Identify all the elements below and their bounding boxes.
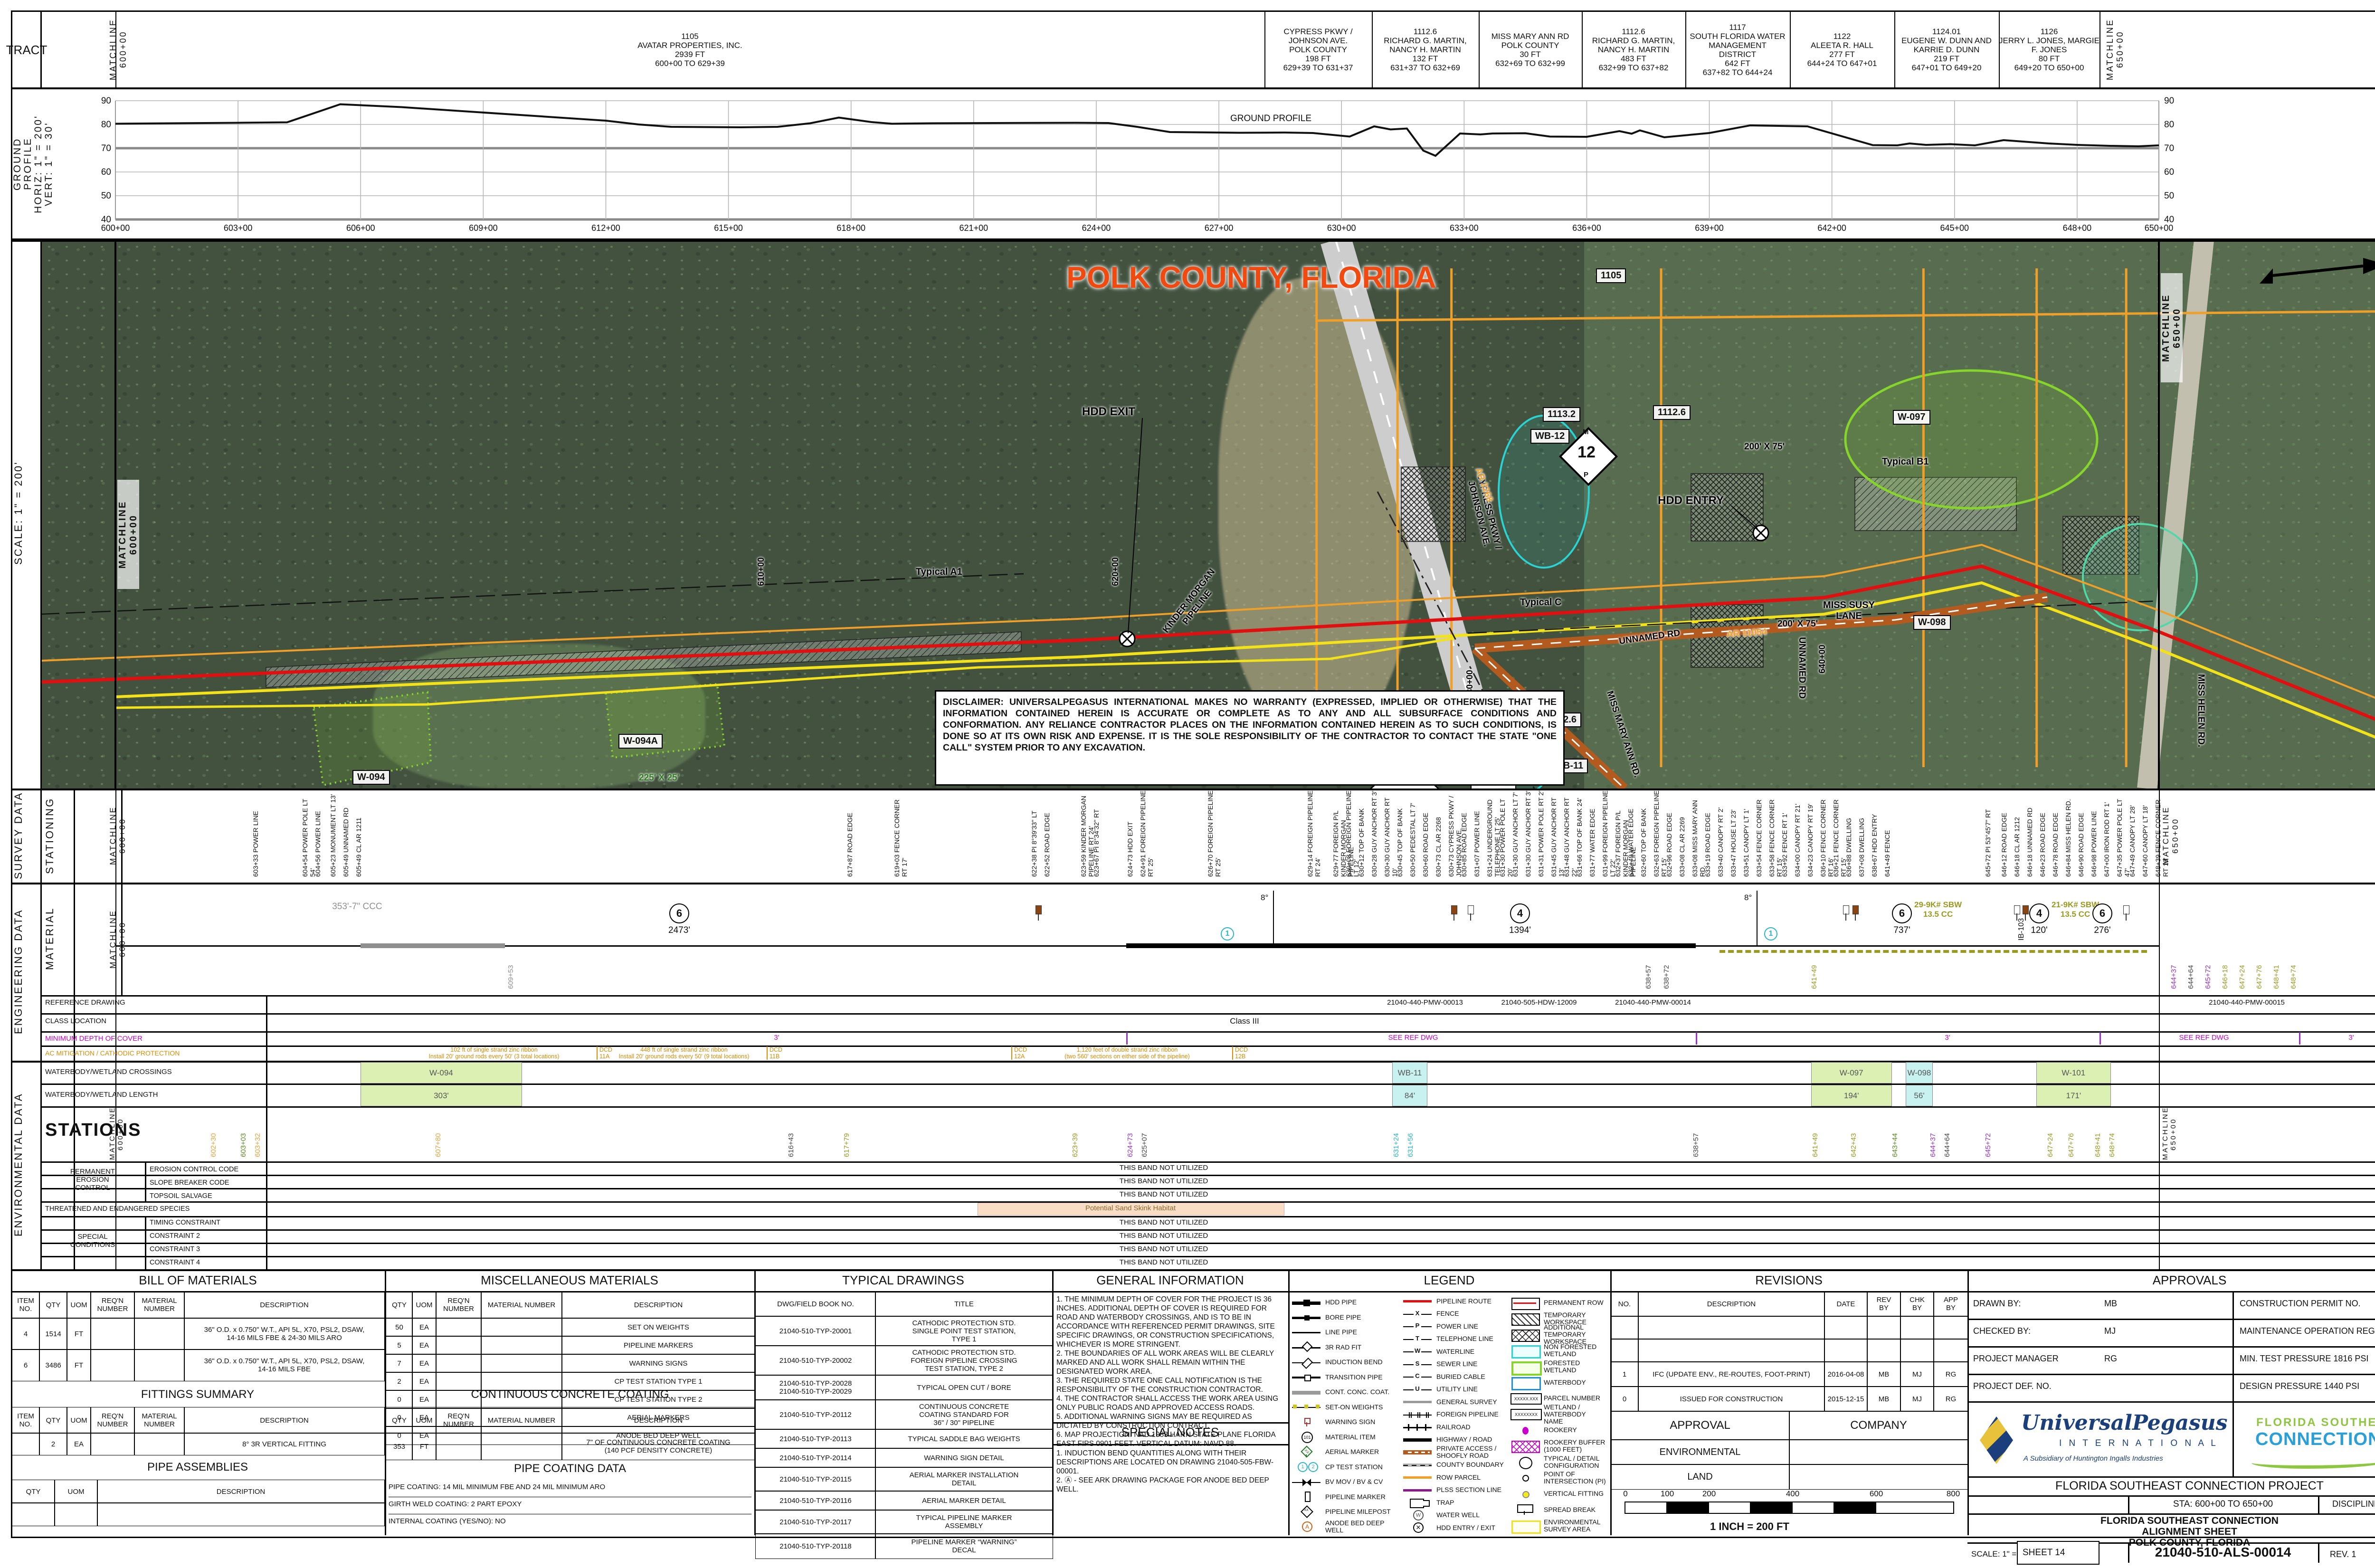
legend-item: ADDITIONAL TEMPORARY WORKSPACE <box>1510 1327 1608 1343</box>
transition-pipe-icon <box>1292 1372 1322 1382</box>
up-logo-sub: I N T E R N A T I O N A L <box>2059 1438 2218 1449</box>
discipline: DISCIPLINE#: 03 <box>2320 1499 2375 1509</box>
bv-mov-icon <box>1292 1477 1322 1487</box>
rule-line <box>1967 1495 2375 1497</box>
revisions-table-cell <box>1867 1316 1901 1340</box>
typicals-table-cell: TITLE <box>875 1291 1053 1317</box>
legend-item-label: ROOKERY BUFFER (1000 FEET) <box>1541 1439 1605 1453</box>
fsc-logo-line1: FLORIDA SOUTHEAST <box>2256 1416 2375 1429</box>
legend-item-label: WATERLINE <box>1434 1348 1474 1355</box>
fittings-table-cell: QTY <box>39 1407 67 1434</box>
set-on-weights-icon-part <box>1316 1405 1320 1408</box>
legend-item: TYPICAL / DETAIL CONFIGURATION <box>1510 1454 1608 1470</box>
foreign-pipeline-icon <box>1403 1409 1434 1420</box>
legend-item: PPOWER LINE <box>1403 1320 1510 1333</box>
legend-item-label: WATERBODY <box>1541 1379 1586 1386</box>
sta-range: STA: 600+00 TO 650+00 <box>2128 1499 2318 1510</box>
legend-item: WATERBODY <box>1510 1375 1608 1391</box>
foreign-pipeline-icon-part <box>1417 1412 1418 1418</box>
revisions-table-cell: DESCRIPTION <box>1638 1291 1825 1317</box>
fittings-table-cell: REQ'N NUMBER <box>90 1407 135 1434</box>
bv-mov-icon-part <box>1307 1479 1311 1486</box>
telephone-line-icon: T <box>1403 1334 1434 1344</box>
bom-table-cell <box>134 1349 185 1381</box>
legend-item-label: VERTICAL FITTING <box>1541 1490 1604 1497</box>
warning-sign-icon-part <box>1304 1418 1311 1424</box>
temp-ws-icon-part <box>1511 1313 1540 1326</box>
env-survey-area-icon <box>1510 1520 1541 1531</box>
rookery-buffer-icon-part <box>1511 1441 1540 1453</box>
waterline-icon-part: W <box>1415 1347 1420 1354</box>
foreign-pipeline-icon-part <box>1426 1412 1427 1418</box>
legend-item-label: BV MOV / BV & CV <box>1322 1478 1383 1485</box>
coating-line: INTERNAL COATING (YES/NO): NO <box>389 1517 751 1531</box>
legend-item: HDD PIPE <box>1292 1295 1402 1310</box>
vertical-fitting-icon <box>1510 1489 1541 1499</box>
legend-item-label: PARCEL NUMBER <box>1541 1395 1600 1402</box>
legend-item-label: ENVIRONMENTAL SURVEY AREA <box>1541 1519 1601 1533</box>
legend-item-label: 3R RAD FIT <box>1322 1344 1361 1351</box>
bom-table-cell: 1514 <box>39 1318 67 1350</box>
hdd-entry-exit-icon-part: ✕ <box>1413 1522 1424 1533</box>
legend-item-label: ROOKERY <box>1541 1426 1577 1434</box>
misc-table-cell: MATERIAL NUMBER <box>481 1291 562 1319</box>
approvals-title: APPROVALS <box>1967 1269 2375 1291</box>
assemblies-title: PIPE ASSEMBLIES <box>11 1461 384 1474</box>
waterbody-icon <box>1510 1377 1541 1387</box>
legend-item-label: COUNTY BOUNDARY <box>1434 1461 1504 1468</box>
waterline-icon-part <box>1421 1351 1432 1352</box>
scale-bar-segment <box>1666 1501 1710 1514</box>
revisions-table-cell <box>1638 1316 1825 1340</box>
misc-table-cell: REQ'N NUMBER <box>436 1291 482 1319</box>
highway-icon-part <box>1403 1438 1432 1442</box>
bom-title: BILL OF MATERIALS <box>11 1269 385 1291</box>
revisions-table-cell <box>1867 1339 1901 1362</box>
revisions-table-cell: CHK BY <box>1900 1291 1934 1317</box>
misc-table-cell <box>436 1354 482 1373</box>
nf-wetland-icon <box>1510 1345 1541 1356</box>
special-notes-title: SPECIAL NOTES <box>1052 1425 1288 1440</box>
typicals-table-cell: 21040-510-TYP-20113 <box>755 1429 876 1449</box>
railroad-icon-part <box>1408 1424 1409 1431</box>
revisions-title: REVISIONS <box>1610 1269 1967 1291</box>
special-notes-text: 1. INDUCTION BEND QUANTITIES ALONG WITH … <box>1056 1449 1283 1494</box>
drawing-number: 21040-510-ALS-00014 <box>2128 1545 2318 1560</box>
legend-item-label: PIPELINE ROUTE <box>1434 1298 1491 1305</box>
buried-cable-icon-part: C <box>1415 1372 1420 1379</box>
legend-item-label: UTILITY LINE <box>1434 1386 1478 1393</box>
revisions-table-cell: MJ <box>1900 1386 1934 1412</box>
legend-item: WWATER WELL <box>1403 1509 1510 1522</box>
approval-cell <box>1789 1464 1968 1490</box>
revisions-table-cell <box>1900 1316 1934 1340</box>
scale-number: 800 <box>1944 1489 1963 1499</box>
legend-item: ✕HDD ENTRY / EXIT <box>1403 1521 1510 1534</box>
rule-line <box>2128 1542 2129 1563</box>
revisions-table-cell: RG <box>1933 1386 1968 1412</box>
titleblock-field-label: PROJECT DEF. NO. <box>1973 1381 2052 1391</box>
misc-table-cell: 50 <box>386 1318 413 1337</box>
revisions-table-cell <box>1933 1339 1968 1362</box>
typicals-table-cell: PIPELINE MARKER “WARNING” DECAL <box>875 1533 1053 1559</box>
legend-item-label: TRANSITION PIPE <box>1322 1374 1383 1381</box>
legend-item: COUNTY BOUNDARY <box>1403 1459 1510 1472</box>
legend-item: XXXXXXXXWETLAND / WATERBODY NAME <box>1510 1406 1608 1423</box>
revisions-table-cell: MJ <box>1900 1361 1934 1387</box>
bottom-tables: BILL OF MATERIALSMISCELLANEOUS MATERIALS… <box>0 0 2375 1568</box>
legend-item-label: WARNING SIGN <box>1322 1418 1375 1425</box>
legend-item-label: BORE PIPE <box>1322 1314 1361 1321</box>
bom-table-cell: 3486 <box>39 1349 67 1381</box>
fsc-logo: FLORIDA SOUTHEASTCONNECTION <box>2242 1413 2375 1470</box>
assemblies-table-cell <box>11 1502 55 1526</box>
titleblock-field-label: PROJECT MANAGER <box>1973 1354 2059 1364</box>
approval-cell: COMPANY <box>1789 1411 1968 1440</box>
revisions-table-cell <box>1824 1339 1868 1362</box>
revisions-table-cell: NO. <box>1610 1291 1639 1317</box>
bom-table-cell: 4 <box>11 1318 40 1350</box>
perm-row-icon-part <box>1511 1298 1540 1310</box>
legend-item-label: PIPELINE MILEPOST <box>1322 1508 1391 1515</box>
line-pipe-icon-part <box>1292 1332 1320 1334</box>
waterline-icon-part <box>1403 1351 1414 1352</box>
approval-cell: ENVIRONMENTAL <box>1610 1439 1790 1465</box>
rule-line <box>1967 1401 2375 1403</box>
legend-item: WARNING SIGN <box>1292 1415 1402 1430</box>
revisions-table-cell <box>1900 1339 1934 1362</box>
pi-icon <box>1510 1473 1541 1483</box>
scale-bar-segment <box>1750 1501 1794 1514</box>
legend-item-label: MATERIAL ITEM <box>1322 1434 1376 1441</box>
aerial-marker-icon: XX <box>1292 1447 1322 1457</box>
titleblock-field-right: CONSTRUCTION PERMIT NO. <box>2240 1299 2361 1309</box>
legend-item-label: TYPICAL / DETAIL CONFIGURATION <box>1541 1455 1599 1469</box>
legend-item-label: HDD ENTRY / EXIT <box>1434 1524 1495 1531</box>
legend-item-label: GENERAL SURVEY <box>1434 1398 1497 1406</box>
titleblock-field-label: CHECKED BY: <box>1973 1326 2031 1336</box>
cont-conc-icon-part <box>1292 1391 1320 1395</box>
row-parcel-icon <box>1403 1472 1434 1482</box>
general-survey-icon <box>1403 1397 1434 1407</box>
cp-test-icon: 12 <box>1292 1462 1322 1472</box>
revisions-table-cell: APP BY <box>1933 1291 1968 1317</box>
titleblock-field-right: MAINTENANCE OPERATION REGION <box>2240 1326 2375 1336</box>
legend-col-1: HDD PIPEBORE PIPELINE PIPE3R RAD FITINDU… <box>1292 1295 1402 1534</box>
misc-table-cell: QTY <box>386 1291 413 1319</box>
revisions-table-cell: RG <box>1933 1361 1968 1387</box>
fence-icon-part: X <box>1415 1310 1420 1317</box>
legend-item: UUTILITY LINE <box>1403 1383 1510 1396</box>
typicals-table-cell: AERIAL MARKER INSTALLATION DETAIL <box>875 1467 1053 1492</box>
legend-item: SET-ON WEIGHTS <box>1292 1400 1402 1415</box>
cont-conc-icon <box>1292 1387 1322 1397</box>
misc-table-cell: 5 <box>386 1336 413 1355</box>
typicals-table-cell: 21040-510-TYP-20112 <box>755 1399 876 1430</box>
scale-number: 0 <box>1616 1489 1635 1499</box>
spread-break-icon-part <box>1524 1511 1525 1515</box>
scale-number: 600 <box>1867 1489 1886 1499</box>
utility-line-icon-part <box>1403 1389 1414 1390</box>
legend-item-label: PLSS SECTION LINE <box>1434 1486 1501 1493</box>
legend-item: GENERAL SURVEY <box>1403 1396 1510 1408</box>
typicals-table-cell: 21040-510-TYP-20002 <box>755 1345 876 1376</box>
add-temp-ws-icon-part <box>1511 1330 1540 1342</box>
coating-title: PIPE COATING DATA <box>386 1462 754 1475</box>
foreign-pipeline-icon-part <box>1428 1412 1429 1418</box>
typicals-table-cell: WARNING SIGN DETAIL <box>875 1448 1053 1468</box>
revisions-table-cell: 0 <box>1610 1386 1639 1412</box>
project-name: FLORIDA SOUTHEAST CONNECTION PROJECT <box>1967 1479 2375 1493</box>
scale-bar-segment <box>1875 1501 1954 1514</box>
legend-item: 3R RAD FIT <box>1292 1340 1402 1355</box>
bom-table-cell <box>90 1318 135 1350</box>
legend-item-label: BURIED CABLE <box>1434 1373 1485 1380</box>
legend-item-label: POWER LINE <box>1434 1323 1478 1330</box>
assemblies-table-cell: UOM <box>54 1480 98 1503</box>
rule-line <box>2232 1291 2234 1319</box>
bv-mov-icon-part <box>1302 1479 1307 1486</box>
bom-table-cell: UOM <box>66 1291 91 1319</box>
anode-bed-icon-part: A <box>1302 1521 1312 1532</box>
sewer-line-icon: S <box>1403 1359 1434 1369</box>
legend-item: PIPELINE ROUTE <box>1403 1295 1510 1308</box>
bom-table-cell: DESCRIPTION <box>184 1291 385 1319</box>
bom-table-cell <box>90 1349 135 1381</box>
typicals-table-cell: TYPICAL SADDLE BAG WEIGHTS <box>875 1429 1053 1449</box>
transition-pipe-icon-part <box>1304 1375 1311 1381</box>
rule-line <box>2318 1542 2319 1563</box>
legend-item: PLSS SECTION LINE <box>1403 1484 1510 1497</box>
legend-item-label: SEWER LINE <box>1434 1360 1477 1368</box>
plss-icon <box>1403 1485 1434 1495</box>
parcel-number-icon: XXXXX.XXX <box>1510 1393 1541 1404</box>
scale-bar-segment <box>1792 1501 1835 1514</box>
bom-table-cell: MATERIAL NUMBER <box>134 1291 185 1319</box>
legend-item-label: CP TEST STATION <box>1322 1463 1383 1471</box>
typicals-table-cell: TYPICAL PIPELINE MARKER ASSEMBLY <box>875 1510 1053 1534</box>
bom-table-cell: 36" O.D. x 0.750" W.T., API 5L, X70, PSL… <box>184 1349 385 1381</box>
water-well-icon-part: W <box>1413 1510 1424 1520</box>
titleblock-field-value: MJ <box>2104 1326 2116 1336</box>
set-on-weights-icon-part <box>1293 1405 1297 1408</box>
fittings-table-cell: 8° 3R VERTICAL FITTING <box>184 1433 385 1455</box>
temp-ws-icon <box>1510 1313 1541 1324</box>
telephone-line-icon-part <box>1421 1339 1432 1340</box>
legend-item-label: RAILROAD <box>1434 1424 1471 1431</box>
revisions-table-cell: ISSUED FOR CONSTRUCTION <box>1638 1386 1825 1412</box>
alignment-sheet: { "colors":{"route_red":"#e01010","row_y… <box>0 0 2375 1568</box>
pipeline-route-icon-part <box>1403 1300 1432 1302</box>
legend-item-label: AERIAL MARKER <box>1322 1448 1379 1455</box>
utility-line-icon-part <box>1421 1389 1432 1390</box>
titleblock-field-value: MB <box>2104 1299 2117 1309</box>
legend-item-label: WETLAND / WATERBODY NAME <box>1541 1404 1608 1425</box>
ccc-table-cell: UOM <box>412 1407 437 1434</box>
titleblock-field-right: MIN. TEST PRESSURE 1816 PSI <box>2240 1354 2368 1364</box>
legend-item-label: WATER WELL <box>1434 1511 1480 1519</box>
f-wetland-icon-part <box>1511 1361 1542 1376</box>
typicals-table-cell: CATHODIC PROTECTION STD. FOREIGN PIPELIN… <box>875 1345 1053 1376</box>
legend-item: CONT. CONC. COAT. <box>1292 1385 1402 1400</box>
milepost-icon-part: XX <box>1303 1509 1309 1512</box>
induction-bend-icon-part <box>1301 1358 1313 1369</box>
legend-item: TRAP <box>1403 1496 1510 1509</box>
fittings-table-cell <box>11 1433 40 1455</box>
rookery-icon <box>1510 1425 1541 1435</box>
revision-number: REV. 1 <box>2330 1549 2356 1559</box>
revisions-table-cell <box>1638 1339 1825 1362</box>
revisions-table-cell <box>1933 1316 1968 1340</box>
typicals-table-cell: 21040-510-TYP-20114 <box>755 1448 876 1468</box>
fittings-title: FITTINGS SUMMARY <box>11 1388 384 1401</box>
approval-cell: LAND <box>1610 1464 1790 1490</box>
spread-break-icon-part <box>1517 1504 1533 1513</box>
power-line-icon-part <box>1421 1326 1432 1327</box>
approval-cell: APPROVAL <box>1610 1411 1790 1440</box>
misc-table-cell: PIPELINE MARKERS <box>561 1336 755 1355</box>
sewer-line-icon-part <box>1421 1364 1432 1365</box>
pi-icon-part <box>1522 1475 1529 1482</box>
legend-item-label: FENCE <box>1434 1310 1459 1317</box>
legend-item-label: PRIVATE ACCESS / SHOOFLY ROAD <box>1434 1445 1496 1459</box>
assemblies-table-cell <box>54 1502 98 1526</box>
private-access-icon <box>1403 1447 1434 1457</box>
fittings-table-cell: DESCRIPTION <box>184 1407 385 1434</box>
perm-row-icon <box>1510 1298 1541 1308</box>
parcel-number-icon-part: XXXXX.XXX <box>1510 1393 1542 1405</box>
county-boundary-icon <box>1403 1460 1434 1470</box>
plss-icon-part <box>1403 1489 1432 1492</box>
legend-col-2: PIPELINE ROUTEXFENCEPPOWER LINETTELEPHON… <box>1403 1295 1510 1534</box>
ccc-table-cell: QTY <box>386 1407 413 1434</box>
ccc-table-cell <box>436 1433 482 1460</box>
hdd-pipe-icon <box>1292 1297 1322 1308</box>
bom-table-cell: REQ'N NUMBER <box>90 1291 135 1319</box>
county-boundary-icon-part <box>1403 1465 1432 1466</box>
legend-item-label: ADDITIONAL TEMPORARY WORKSPACE <box>1541 1324 1608 1345</box>
typical-detail-icon-part <box>1519 1457 1532 1469</box>
typicals-table-cell: CATHODIC PROTECTION STD. SINGLE POINT TE… <box>875 1316 1053 1346</box>
legend-item-label: TRAP <box>1434 1499 1454 1506</box>
rule-line <box>1967 1346 2375 1348</box>
hdd-entry-exit-icon: ✕ <box>1403 1522 1434 1533</box>
legend-title: LEGEND <box>1288 1269 1610 1291</box>
legend-item-label: HDD PIPE <box>1322 1299 1357 1306</box>
trap-icon-part <box>1410 1499 1424 1508</box>
utility-line-icon-part: U <box>1415 1385 1420 1392</box>
legend-item-label: POINT OF INTERSECTION (PI) <box>1541 1471 1606 1485</box>
ccc-table-cell: 7" OF CONTINUOUS CONCRETE COATING (140 P… <box>561 1433 755 1460</box>
typicals-table-cell: 21040-510-TYP-20117 <box>755 1510 876 1534</box>
scale-bar-segment <box>1624 1501 1668 1514</box>
legend-item-label: CONT. CONC. COAT. <box>1322 1388 1389 1396</box>
legend-item: XFENCE <box>1403 1308 1510 1321</box>
anode-bed-icon: A <box>1292 1521 1322 1532</box>
cp-test-icon-part: 2 <box>1308 1462 1318 1472</box>
ccc-table-cell: REQ'N NUMBER <box>436 1407 482 1434</box>
pipeline-marker-icon <box>1292 1492 1322 1502</box>
pipeline-route-icon <box>1403 1296 1434 1306</box>
general-info-title: GENERAL INFORMATION <box>1052 1269 1288 1291</box>
misc-table-cell: 7 <box>386 1354 413 1373</box>
misc-table-cell: UOM <box>412 1291 437 1319</box>
wetland-name-icon-part: XXXXXXXX <box>1510 1409 1542 1420</box>
typicals-table-cell: 21040-510-TYP-20028 21040-510-TYP-20029 <box>755 1375 876 1400</box>
telephone-line-icon-part: T <box>1415 1335 1420 1342</box>
legend-col-3: PERMANENT ROWTEMPORARY WORKSPACEADDITION… <box>1510 1295 1608 1534</box>
legend-item: 12CP TEST STATION <box>1292 1460 1402 1475</box>
assemblies-table-cell: QTY <box>11 1480 55 1503</box>
revisions-table-cell: MB <box>1867 1386 1901 1412</box>
wetland-name-icon: XXXXXXXX <box>1510 1409 1541 1419</box>
fittings-table-cell <box>90 1433 135 1455</box>
revisions-table-cell: IFC (UPDATE ENV., RE-ROUTES, FOOT-PRINT) <box>1638 1361 1825 1387</box>
legend-item-label: SET-ON WEIGHTS <box>1322 1404 1383 1411</box>
fittings-table-cell: MATERIAL NUMBER <box>134 1407 185 1434</box>
scale-number: 400 <box>1783 1489 1802 1499</box>
scale-bar-segment <box>1833 1501 1877 1514</box>
f-wetland-icon <box>1510 1361 1541 1372</box>
misc-table-cell: SET ON WEIGHTS <box>561 1318 755 1337</box>
fence-icon-part <box>1403 1314 1414 1315</box>
titleblock-field-right: DESIGN PRESSURE 1440 PSI <box>2240 1381 2359 1391</box>
bom-table-cell: FT <box>66 1349 91 1381</box>
railroad-icon <box>1403 1422 1434 1432</box>
legend-item: WWATERLINE <box>1403 1345 1510 1358</box>
legend-item: SSEWER LINE <box>1403 1358 1510 1371</box>
legend-item: 101MATERIAL ITEM <box>1292 1430 1402 1445</box>
up-logo-diamond-icon <box>1980 1416 2013 1464</box>
legend-item: PIPELINE MARKER <box>1292 1490 1402 1505</box>
revisions-table-cell <box>1610 1339 1639 1362</box>
private-access-icon-part <box>1405 1452 1430 1453</box>
legend-item: ENVIRONMENTAL SURVEY AREA <box>1510 1518 1608 1534</box>
fence-icon: X <box>1403 1309 1434 1319</box>
water-well-icon: W <box>1403 1510 1434 1520</box>
typicals-table-cell: 21040-510-TYP-20118 <box>755 1533 876 1559</box>
highway-icon <box>1403 1435 1434 1445</box>
rule-line <box>1967 1374 2375 1375</box>
typicals-title: TYPICAL DRAWINGS <box>754 1269 1052 1291</box>
typicals-table-cell: DWG/FIELD BOOK NO. <box>755 1291 876 1317</box>
scale-number: 200 <box>1700 1489 1719 1499</box>
legend-item: XXAERIAL MARKER <box>1292 1444 1402 1460</box>
up-logo-tag: A Subsidiary of Huntington Ingalls Indus… <box>2023 1454 2163 1463</box>
legend-item: FORESTED WETLAND <box>1510 1359 1608 1375</box>
rule-line <box>2318 1495 2319 1513</box>
rule-line <box>2232 1374 2234 1401</box>
induction-bend-icon <box>1292 1357 1322 1368</box>
revisions-table-cell: MB <box>1867 1361 1901 1387</box>
typicals-table-cell: AERIAL MARKER DETAIL <box>875 1491 1053 1511</box>
bore-pipe-icon <box>1292 1312 1322 1322</box>
rule-line <box>1052 1444 1288 1445</box>
material-item-icon: 101 <box>1292 1432 1322 1442</box>
scale-caption: 1 INCH = 200 FT <box>1710 1520 1789 1533</box>
fittings-table-cell: EA <box>66 1433 91 1455</box>
foreign-pipeline-icon-part <box>1411 1412 1412 1418</box>
legend-item-label: NON FORESTED WETLAND <box>1541 1343 1608 1358</box>
rule-line <box>2232 1401 2234 1476</box>
trap-icon-part <box>1423 1500 1430 1507</box>
coating-line: PIPE COATING: 14 MIL MINIMUM FBE AND 24 … <box>389 1483 751 1497</box>
legend-item: SPREAD BREAK <box>1510 1502 1608 1518</box>
titleblock-field-label: DRAWN BY: <box>1973 1299 2021 1309</box>
legend-item: XXPIPELINE MILEPOST <box>1292 1504 1402 1520</box>
legend-item-label: INDUCTION BEND <box>1322 1359 1383 1366</box>
up-logo-name: UniversalPegasus <box>2021 1411 2228 1435</box>
